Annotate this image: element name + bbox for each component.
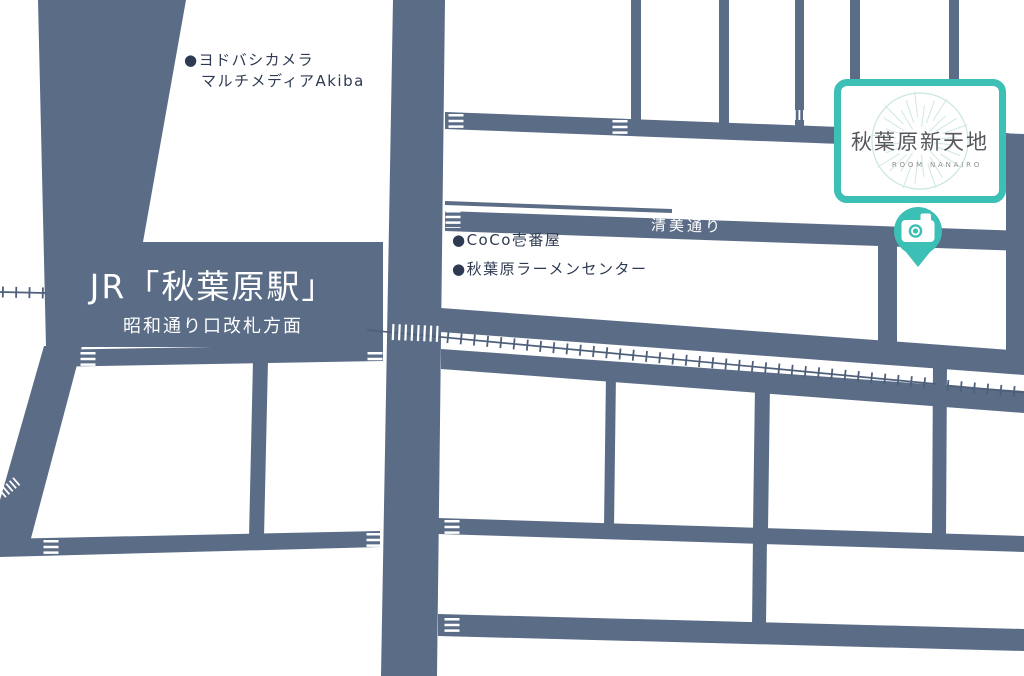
- road-pin-vertical: [878, 228, 897, 344]
- station-title: JR「秋葉原駅」: [40, 260, 386, 308]
- logo-card: 秋葉原新天地 ROOM NANAIRO: [834, 79, 1006, 203]
- logo-subtitle: ROOM NANAIRO: [875, 161, 999, 169]
- road-main-vertical: [381, 0, 445, 676]
- road-mid-v2: [753, 385, 770, 530]
- access-map: ●ヨドバシカメラ マルチメディアAkiba ●CoCo壱番屋 ●秋葉原ラーメンセ…: [0, 0, 1024, 676]
- road-top-v1: [631, 0, 641, 124]
- camera-map-pin: [894, 207, 942, 267]
- pin-tail: [904, 249, 933, 267]
- logo-title: 秋葉原新天地: [841, 126, 999, 156]
- road-h4: [438, 614, 1024, 651]
- road-mid-v1: [604, 373, 616, 528]
- street-label-kiyomi: 清美通り: [651, 214, 724, 237]
- station-label: JR「秋葉原駅」 昭和通り口改札方面: [40, 260, 386, 338]
- poi-label-ramen: ●秋葉原ラーメンセンター: [452, 259, 648, 280]
- road-mid-v3: [932, 364, 947, 539]
- road-left-center-vertical: [249, 360, 268, 537]
- road-left-diagonal: [0, 346, 82, 542]
- station-subtitle: 昭和通り口改札方面: [40, 312, 386, 338]
- road-right-edge-vertical: [1006, 133, 1024, 352]
- road-mid-v4: [752, 536, 767, 628]
- road-kiyomi-upper-edge: [445, 201, 672, 213]
- poi-yodobashi-line2: マルチメディアAkiba: [184, 71, 365, 92]
- poi-yodobashi-line1: ●ヨドバシカメラ: [184, 50, 365, 71]
- poi-label-coco: ●CoCo壱番屋: [452, 230, 561, 251]
- road-top-v2: [719, 0, 729, 127]
- poi-label-yodobashi: ●ヨドバシカメラ マルチメディアAkiba: [184, 50, 365, 92]
